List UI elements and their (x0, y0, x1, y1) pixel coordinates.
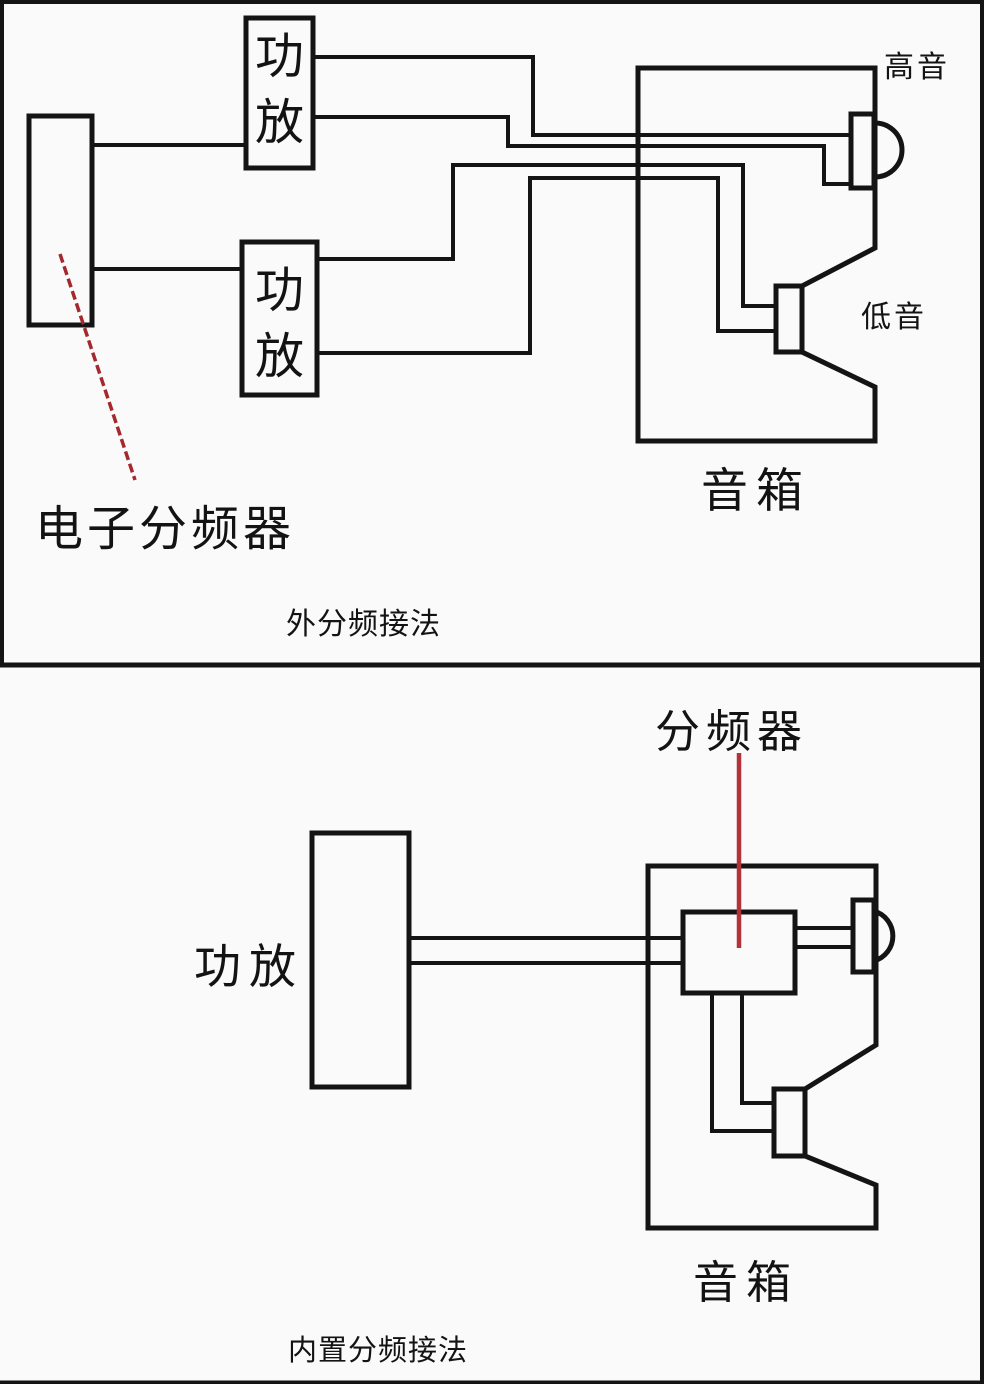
bottom-woofer-driver (774, 1089, 805, 1156)
top-crossover-pointer-line (60, 254, 135, 480)
bottom-tweeter-driver (853, 900, 874, 972)
top-electronic-crossover-box (29, 116, 92, 325)
top-tweeter-dome (875, 123, 902, 177)
bottom-crossover-label: 分频器 (655, 695, 808, 760)
top-tweeter-driver (851, 114, 874, 188)
wiring-diagram-svg (0, 0, 984, 1384)
bottom-diagram-caption: 内置分频接法 (288, 1327, 468, 1369)
wire-amp1-to-tweeter-minus (313, 117, 851, 184)
top-amplifier-2-label: 功放 (242, 258, 317, 390)
top-tweeter-label: 高音 (884, 42, 950, 86)
top-crossover-label: 电子分频器 (35, 489, 295, 559)
top-speaker-enclosure (638, 68, 875, 441)
top-woofer-label: 低音 (861, 292, 927, 336)
top-amplifier-1-label: 功放 (246, 24, 313, 156)
wire-crossover-to-woofer-plus (742, 993, 774, 1103)
wire-amp2-to-woofer-plus (317, 165, 776, 306)
bottom-amplifier-label: 功放 (194, 928, 304, 997)
top-woofer-driver (776, 286, 802, 352)
bottom-speaker-label: 音箱 (693, 1246, 799, 1311)
bottom-amplifier-box (312, 833, 409, 1087)
wire-amp2-to-woofer-minus (317, 178, 776, 353)
schematic-page: 功放 功放 高音 低音 音箱 电子分频器 外分频接法 分频器 功放 音箱 内置分… (0, 0, 984, 1384)
top-speaker-label: 音箱 (701, 452, 811, 521)
top-diagram-caption: 外分频接法 (286, 599, 441, 643)
